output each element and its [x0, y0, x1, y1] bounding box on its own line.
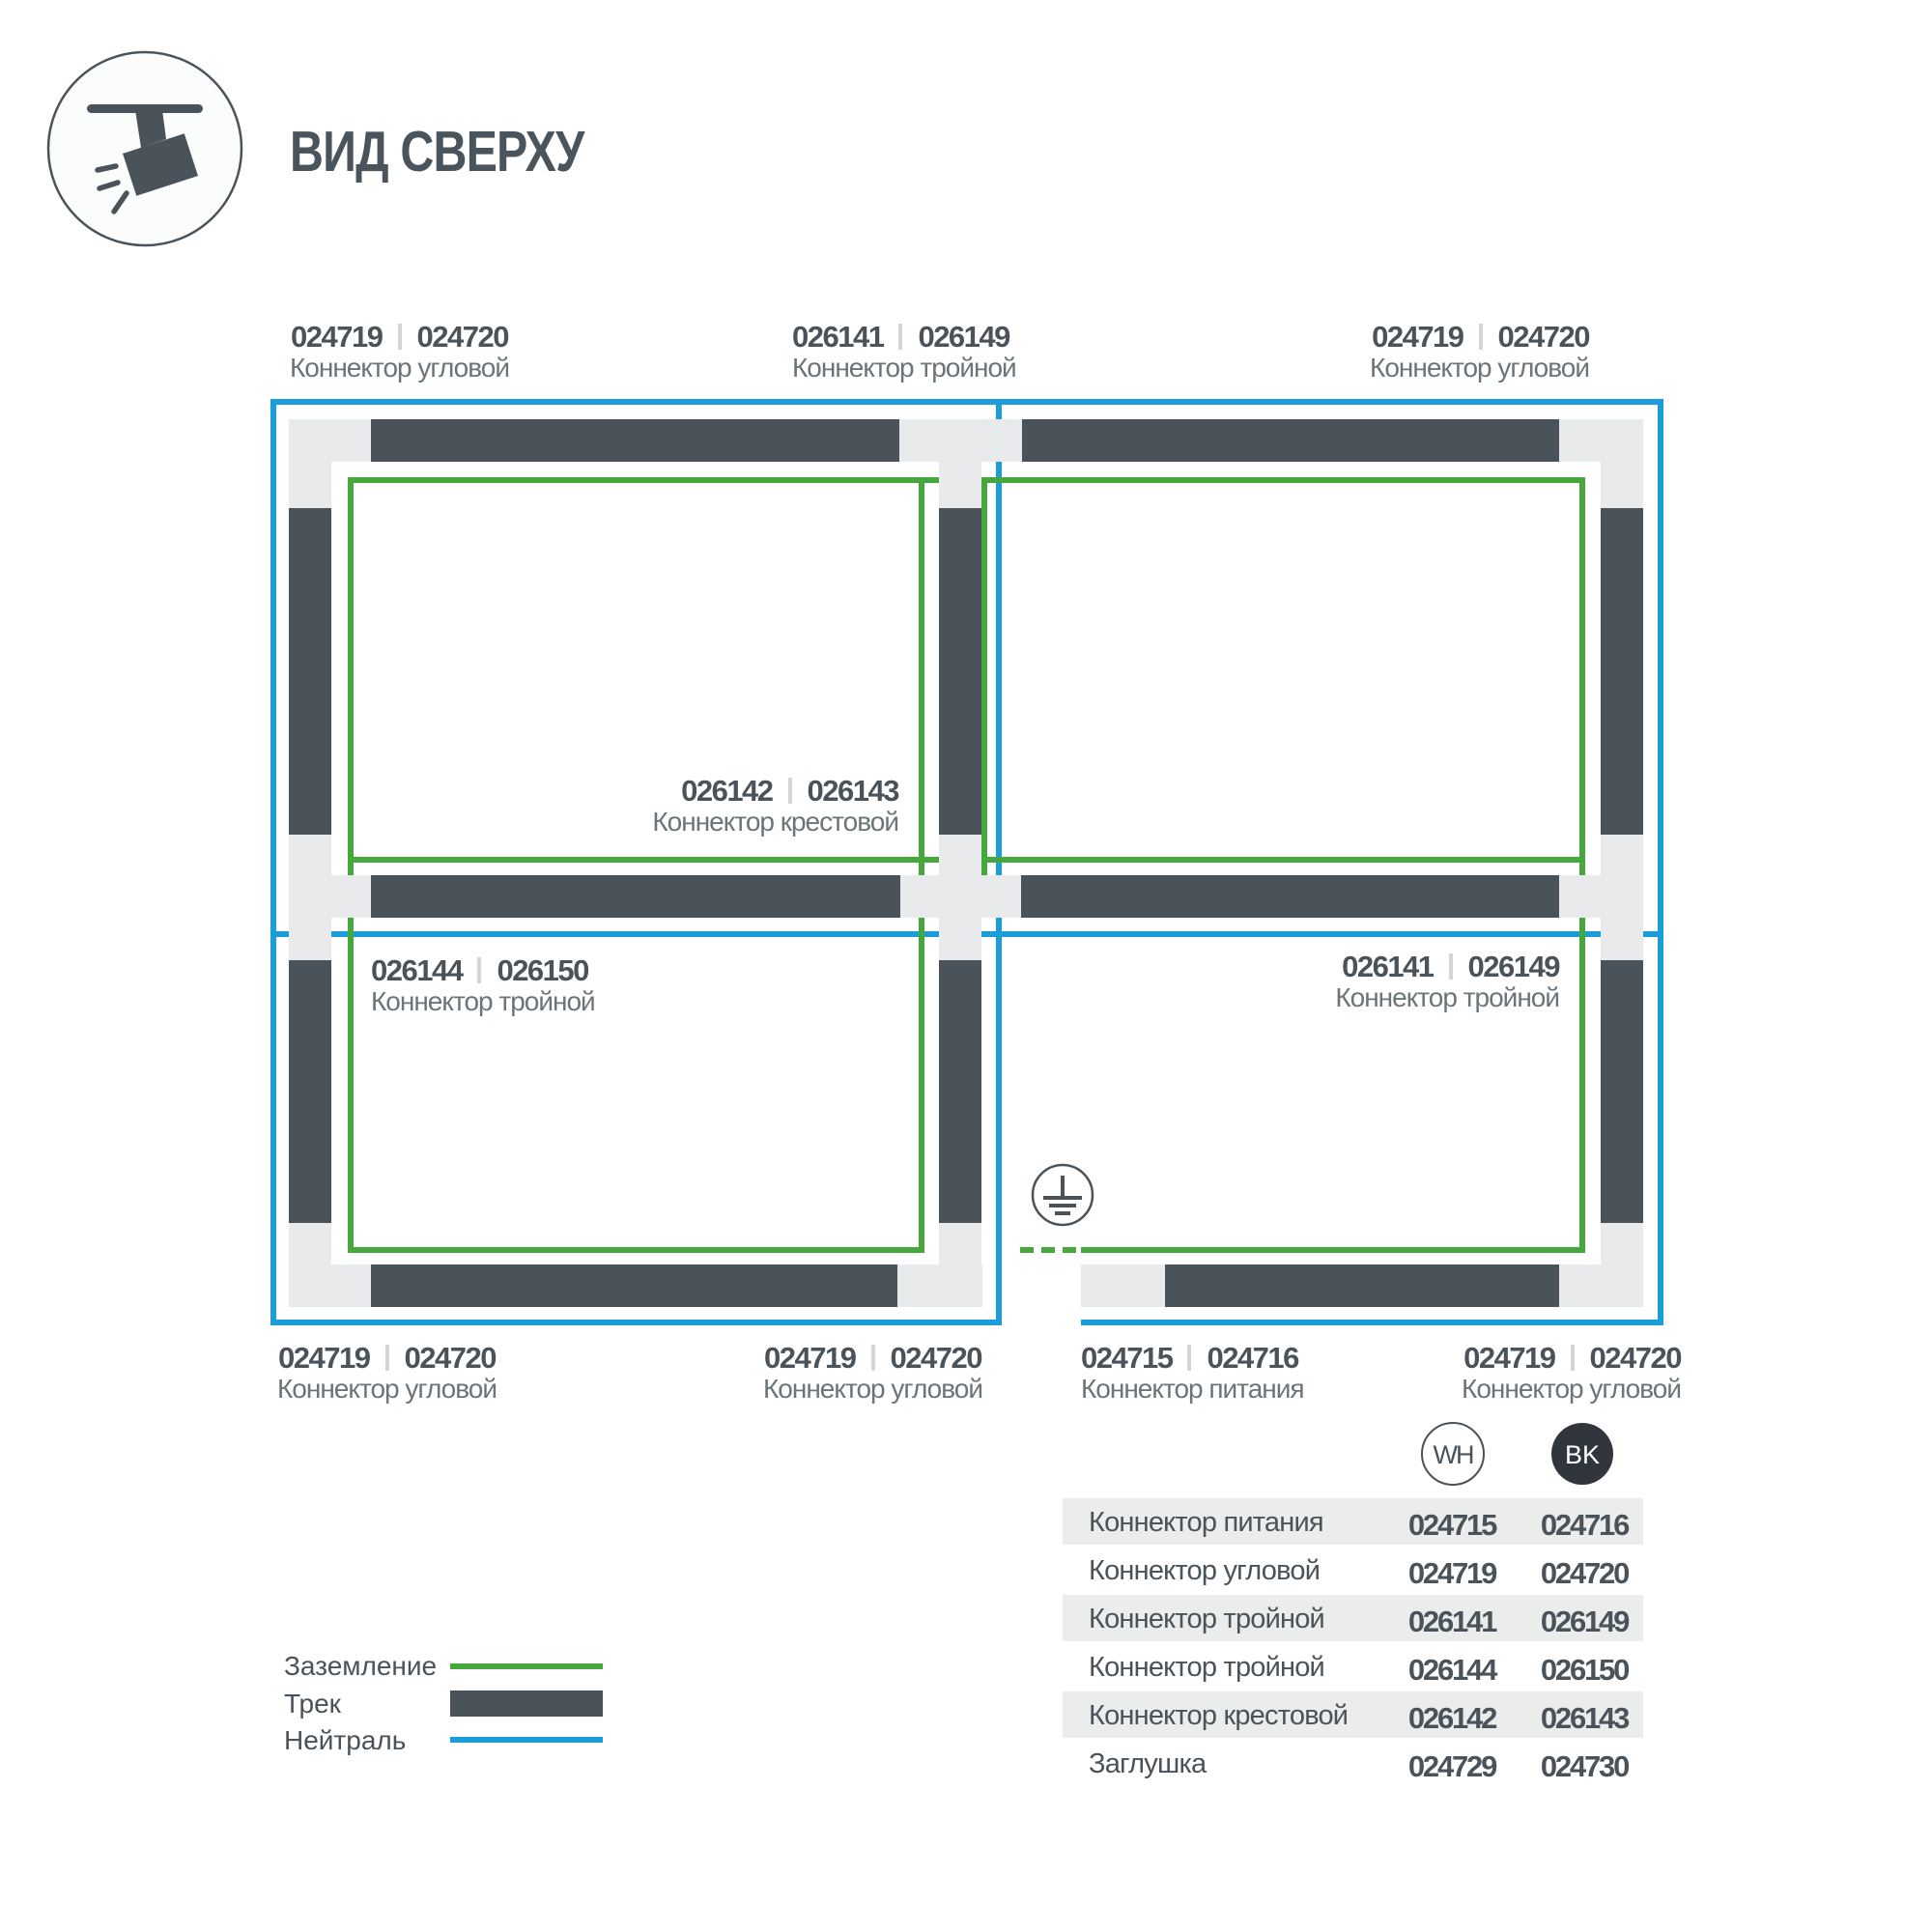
- svg-text:WH: WH: [1434, 1440, 1473, 1469]
- svg-text:BK: BK: [1565, 1440, 1600, 1469]
